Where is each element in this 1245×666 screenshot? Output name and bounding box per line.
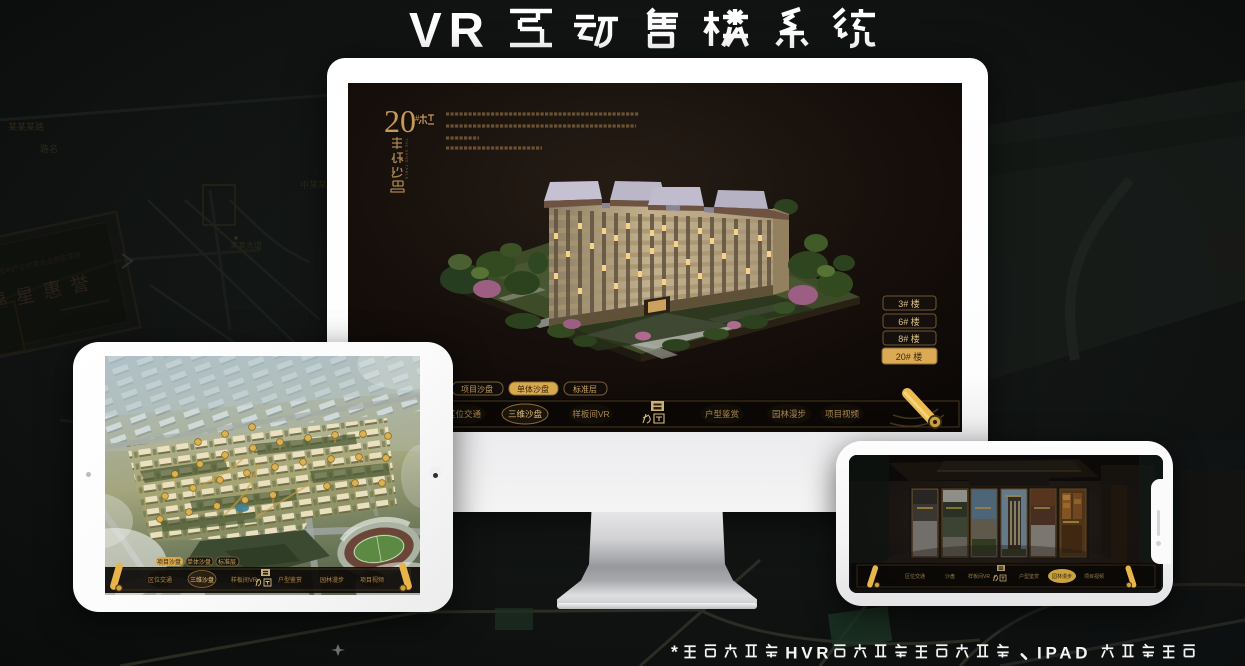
svg-text:标准层: 标准层 <box>573 384 597 394</box>
svg-text:20: 20 <box>384 103 416 139</box>
svg-text:园林漫步: 园林漫步 <box>320 576 344 584</box>
svg-text:20# 楼: 20# 楼 <box>896 351 923 362</box>
svg-text:IPAD: IPAD <box>1037 644 1091 663</box>
svg-text:某某大道: 某某大道 <box>230 240 262 250</box>
svg-text:样板间VR: 样板间VR <box>572 409 609 419</box>
svg-text:项目视频: 项目视频 <box>360 576 384 584</box>
svg-text:标准层: 标准层 <box>218 558 236 566</box>
svg-text:三维沙盘: 三维沙盘 <box>508 409 543 419</box>
svg-text:三维沙盘: 三维沙盘 <box>190 576 214 584</box>
svg-text:单体沙盘: 单体沙盘 <box>187 558 211 566</box>
svg-text:项目沙盘: 项目沙盘 <box>157 558 181 566</box>
svg-text:项目视频: 项目视频 <box>825 409 860 419</box>
svg-text:单体沙盘: 单体沙盘 <box>517 384 549 394</box>
svg-text:户型鉴赏: 户型鉴赏 <box>705 409 739 419</box>
svg-text:VR: VR <box>409 4 491 58</box>
svg-text:户型鉴赏: 户型鉴赏 <box>1019 573 1039 580</box>
svg-text:区位交通: 区位交通 <box>905 573 925 580</box>
svg-text:区位交通: 区位交通 <box>148 576 172 584</box>
svg-text:户型鉴赏: 户型鉴赏 <box>278 576 302 584</box>
svg-text:项目沙盘: 项目沙盘 <box>461 384 493 394</box>
svg-text:项目视频: 项目视频 <box>1084 573 1104 580</box>
svg-text:沙盘: 沙盘 <box>945 573 955 580</box>
svg-text:路名: 路名 <box>40 143 58 154</box>
svg-text:3# 楼: 3# 楼 <box>898 298 920 309</box>
svg-text:样板间VR: 样板间VR <box>231 576 258 584</box>
svg-text:某某某路: 某某某路 <box>8 121 44 132</box>
svg-text:#: # <box>415 114 420 123</box>
svg-text:园林漫步: 园林漫步 <box>1052 573 1072 580</box>
svg-text:HVR: HVR <box>785 644 832 663</box>
svg-text:6# 楼: 6# 楼 <box>898 316 920 327</box>
svg-text:样板间VR: 样板间VR <box>968 573 990 580</box>
svg-text:8# 楼: 8# 楼 <box>898 333 920 344</box>
svg-text:THE SAND TABLE: THE SAND TABLE <box>405 138 410 180</box>
svg-text:*: * <box>671 642 678 662</box>
svg-text:园林漫步: 园林漫步 <box>772 409 806 419</box>
